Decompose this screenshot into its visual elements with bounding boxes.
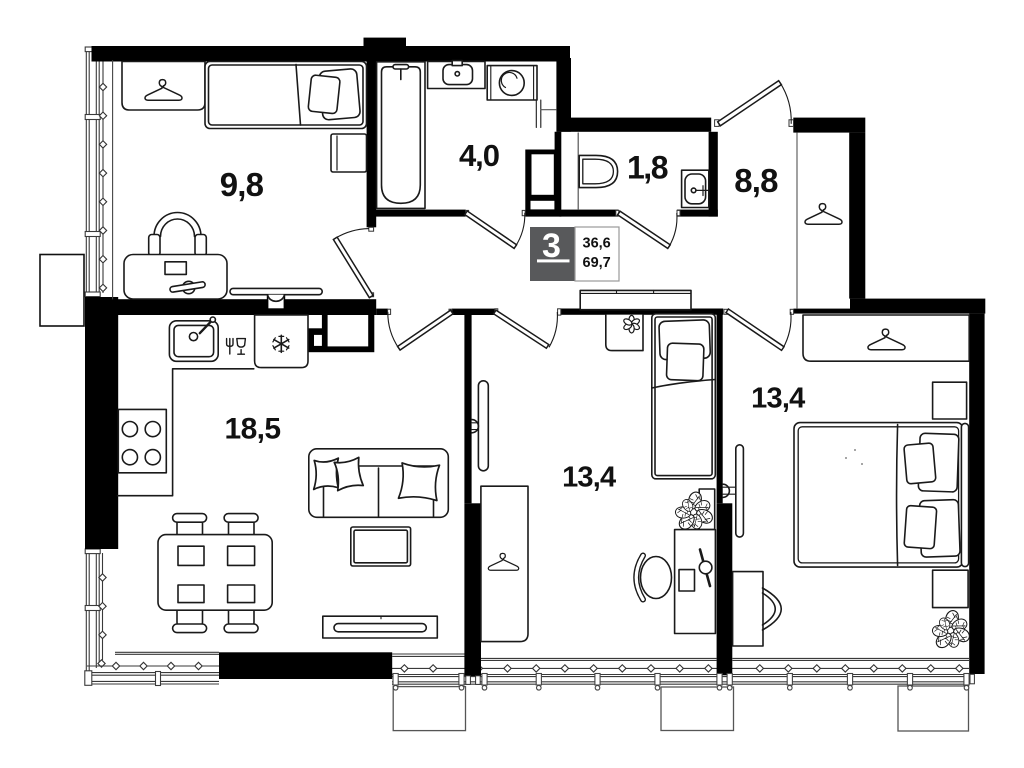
svg-text:9,8: 9,8 bbox=[220, 166, 264, 203]
svg-text:13,4: 13,4 bbox=[751, 383, 805, 415]
svg-text:13,4: 13,4 bbox=[562, 462, 616, 494]
svg-text:1,8: 1,8 bbox=[627, 150, 668, 186]
svg-text:69,7: 69,7 bbox=[583, 255, 611, 271]
svg-text:36,6: 36,6 bbox=[583, 236, 611, 252]
svg-text:3: 3 bbox=[542, 227, 561, 265]
svg-text:4,0: 4,0 bbox=[459, 138, 499, 173]
svg-text:18,5: 18,5 bbox=[225, 413, 281, 446]
svg-text:8,8: 8,8 bbox=[734, 162, 778, 199]
